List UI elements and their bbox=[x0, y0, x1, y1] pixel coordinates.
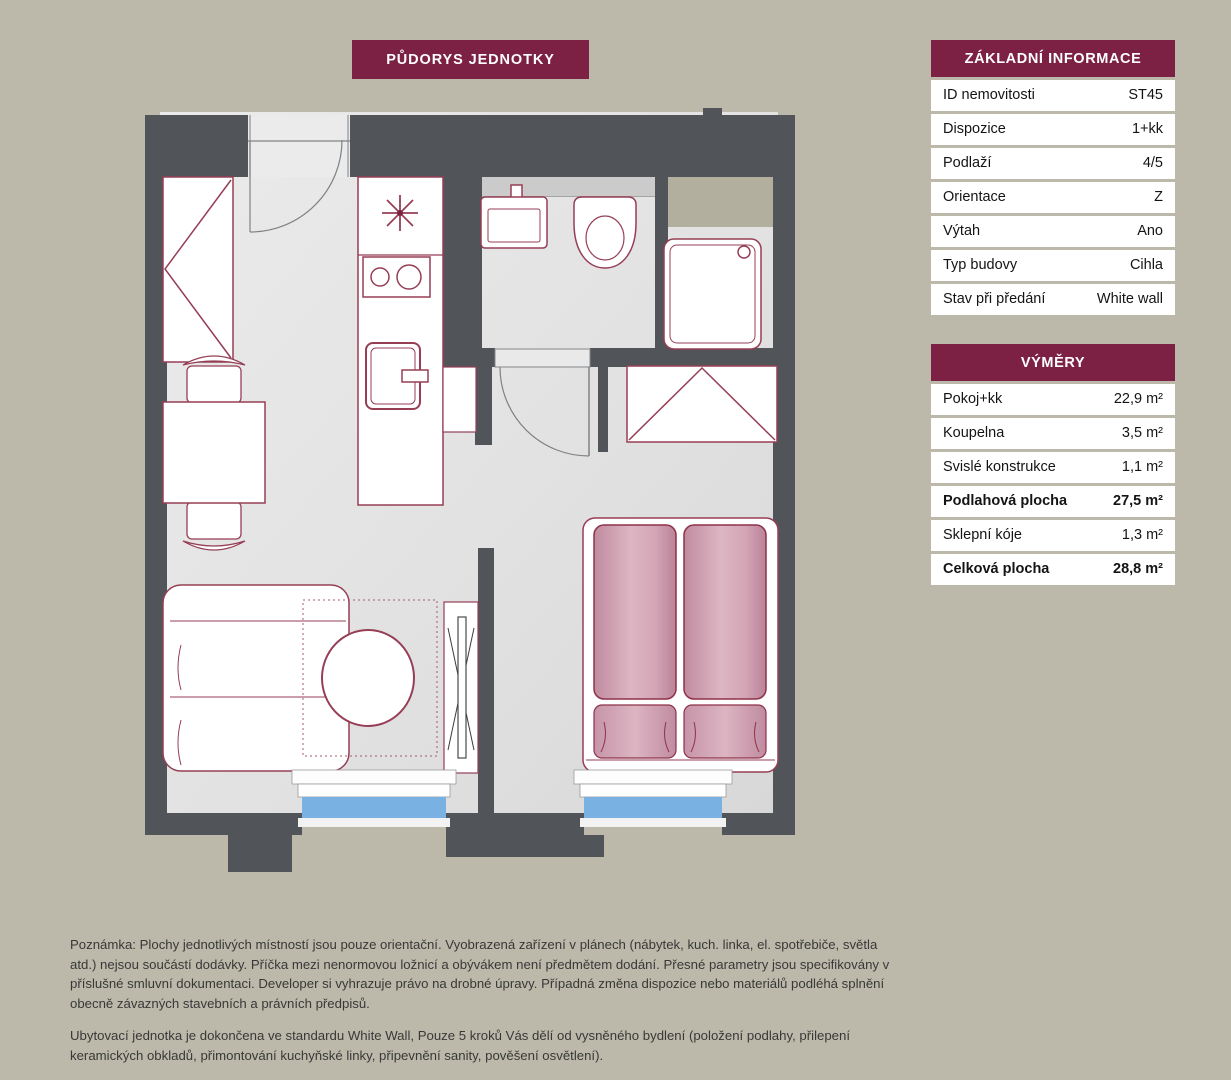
window-bedroom bbox=[574, 770, 732, 827]
area-row: Koupelna 3,5 m² bbox=[931, 418, 1175, 450]
areas-header: VÝMĚRY bbox=[931, 344, 1175, 381]
row-value: 1,1 m² bbox=[1122, 459, 1163, 475]
row-value: 28,8 m² bbox=[1113, 561, 1163, 577]
info-panel: ZÁKLADNÍ INFORMACE ID nemovitosti ST45 D… bbox=[931, 40, 1175, 585]
row-value: 1,3 m² bbox=[1122, 527, 1163, 543]
row-label: Celková plocha bbox=[943, 561, 1049, 577]
row-label: Orientace bbox=[943, 189, 1006, 205]
info-row: Orientace Z bbox=[931, 182, 1175, 214]
row-value: Ano bbox=[1137, 223, 1163, 239]
info-row: Stav při předání White wall bbox=[931, 284, 1175, 316]
note-paragraph-2: Ubytovací jednotka je dokončena ve stand… bbox=[70, 1026, 892, 1065]
areas-table: VÝMĚRY Pokoj+kk 22,9 m² Koupelna 3,5 m² … bbox=[931, 344, 1175, 585]
area-row: Sklepní kóje 1,3 m² bbox=[931, 520, 1175, 552]
row-value: White wall bbox=[1097, 291, 1163, 307]
bed bbox=[583, 518, 778, 772]
row-label: Typ budovy bbox=[943, 257, 1017, 273]
shower-head bbox=[738, 246, 750, 258]
coffee-table bbox=[322, 630, 414, 726]
row-label: Dispozice bbox=[943, 121, 1006, 137]
duvet-right bbox=[684, 525, 766, 699]
area-row: Pokoj+kk 22,9 m² bbox=[931, 384, 1175, 416]
row-label: Svislé konstrukce bbox=[943, 459, 1056, 475]
area-row-floor-total: Podlahová plocha 27,5 m² bbox=[931, 486, 1175, 518]
sink-faucet bbox=[402, 370, 428, 382]
row-value: Cihla bbox=[1130, 257, 1163, 273]
row-label: Výtah bbox=[943, 223, 980, 239]
row-value: 4/5 bbox=[1143, 155, 1163, 171]
light-symbol bbox=[382, 195, 418, 231]
row-label: Podlaží bbox=[943, 155, 991, 171]
bathroom-ledge bbox=[482, 177, 655, 197]
chair-top-seat bbox=[187, 366, 241, 403]
info-row: Podlaží 4/5 bbox=[931, 148, 1175, 180]
exterior-pier-left bbox=[228, 835, 292, 872]
row-value: 27,5 m² bbox=[1113, 493, 1163, 509]
window-living bbox=[292, 770, 456, 827]
tv-screen bbox=[458, 617, 466, 758]
note-paragraph-1: Poznámka: Plochy jednotlivých místností … bbox=[70, 935, 892, 1013]
chair-bottom-seat bbox=[187, 502, 241, 539]
area-row-grand-total: Celková plocha 28,8 m² bbox=[931, 554, 1175, 586]
window-glass bbox=[302, 797, 446, 818]
row-value: 1+kk bbox=[1132, 121, 1163, 137]
cooktop bbox=[363, 257, 430, 297]
wardrobe-bedroom bbox=[627, 366, 777, 442]
row-label: Podlahová plocha bbox=[943, 493, 1067, 509]
info-row: Dispozice 1+kk bbox=[931, 114, 1175, 146]
info-row: Typ budovy Cihla bbox=[931, 250, 1175, 282]
counter-extension bbox=[443, 367, 476, 432]
row-value: 22,9 m² bbox=[1114, 391, 1163, 407]
wardrobe-entry bbox=[163, 177, 233, 362]
basic-info-table: ZÁKLADNÍ INFORMACE ID nemovitosti ST45 D… bbox=[931, 40, 1175, 315]
info-row: Výtah Ano bbox=[931, 216, 1175, 248]
shaft bbox=[668, 177, 773, 227]
toilet bbox=[574, 197, 636, 268]
page-title: PŮDORYS JEDNOTKY bbox=[386, 52, 555, 68]
row-value: ST45 bbox=[1128, 87, 1163, 103]
row-label: Stav při předání bbox=[943, 291, 1045, 307]
window-glass bbox=[584, 797, 722, 818]
tv-board bbox=[444, 602, 478, 773]
footnotes: Poznámka: Plochy jednotlivých místností … bbox=[70, 935, 892, 1078]
plan-title-banner: PŮDORYS JEDNOTKY bbox=[352, 40, 589, 79]
row-label: ID nemovitosti bbox=[943, 87, 1035, 103]
row-value: 3,5 m² bbox=[1122, 425, 1163, 441]
kitchen-sink bbox=[366, 343, 428, 409]
area-row: Svislé konstrukce 1,1 m² bbox=[931, 452, 1175, 484]
row-label: Koupelna bbox=[943, 425, 1004, 441]
basic-info-header: ZÁKLADNÍ INFORMACE bbox=[931, 40, 1175, 77]
dining-table bbox=[163, 402, 265, 503]
exterior-pier-middle bbox=[446, 835, 604, 857]
info-row: ID nemovitosti ST45 bbox=[931, 80, 1175, 112]
pillow-right bbox=[684, 705, 766, 758]
row-value: Z bbox=[1154, 189, 1163, 205]
shower bbox=[664, 239, 761, 349]
row-label: Sklepní kóje bbox=[943, 527, 1022, 543]
duvet-left bbox=[594, 525, 676, 699]
row-label: Pokoj+kk bbox=[943, 391, 1002, 407]
pillow-left bbox=[594, 705, 676, 758]
